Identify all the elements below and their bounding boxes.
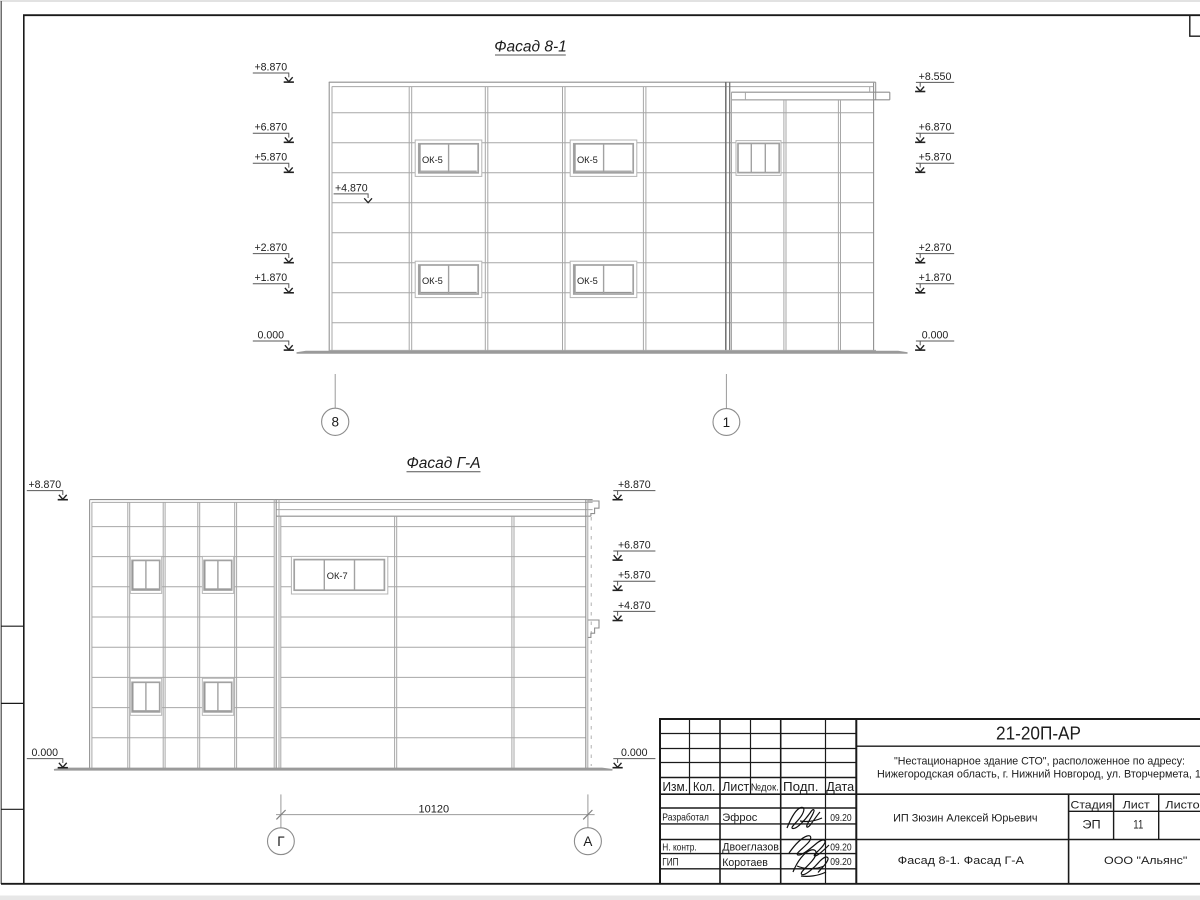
svg-text:Стадия: Стадия (1071, 799, 1113, 811)
svg-text:Фасад 8-1. Фасад Г-А: Фасад 8-1. Фасад Г-А (898, 855, 1025, 867)
svg-text:+2.870: +2.870 (919, 242, 952, 254)
svg-text:Эфрос: Эфрос (722, 812, 757, 824)
svg-text:Изм.: Изм. (663, 779, 689, 794)
svg-text:ИП Зюзин Алексей Юрьевич: ИП Зюзин Алексей Юрьевич (893, 812, 1038, 824)
svg-text:+8.870: +8.870 (618, 479, 651, 491)
svg-text:0.000: 0.000 (32, 747, 59, 759)
svg-text:09.20: 09.20 (830, 843, 852, 854)
svg-text:Г: Г (277, 834, 285, 849)
svg-text:09.20: 09.20 (830, 813, 852, 824)
svg-text:+6.870: +6.870 (618, 539, 651, 551)
svg-text:+1.870: +1.870 (919, 272, 952, 284)
svg-text:ОК-5: ОК-5 (577, 155, 598, 165)
svg-text:0.000: 0.000 (258, 329, 285, 341)
svg-text:ОК-7: ОК-7 (327, 571, 348, 581)
svg-text:ОК-5: ОК-5 (577, 276, 598, 286)
svg-text:+4.870: +4.870 (335, 182, 368, 194)
svg-text:Разработал: Разработал (662, 812, 709, 824)
svg-text:Фасад Г-А: Фасад Г-А (406, 455, 480, 472)
svg-text:Лист: Лист (1123, 799, 1151, 811)
svg-text:Дата: Дата (826, 779, 855, 794)
svg-text:8: 8 (331, 415, 339, 430)
svg-text:Двоеглазов: Двоеглазов (722, 842, 779, 854)
svg-text:+2.870: +2.870 (254, 242, 287, 254)
svg-text:11: 11 (1133, 818, 1143, 832)
svg-text:Кол.: Кол. (693, 779, 715, 794)
svg-text:№док.: №док. (751, 782, 779, 793)
svg-text:Подп.: Подп. (783, 779, 819, 794)
svg-text:+8.870: +8.870 (254, 61, 287, 73)
svg-text:Коротаев: Коротаев (722, 857, 768, 869)
svg-text:ООО "Альянс": ООО "Альянс" (1104, 855, 1187, 867)
svg-text:+5.870: +5.870 (919, 152, 952, 164)
svg-text:1: 1 (723, 415, 731, 430)
svg-text:+5.870: +5.870 (618, 570, 651, 582)
svg-text:+8.870: +8.870 (28, 479, 61, 491)
svg-text:ОК-5: ОК-5 (422, 155, 443, 165)
svg-text:Фасад 8-1: Фасад 8-1 (494, 39, 567, 56)
svg-text:"Нестационарное здание СТО", р: "Нестационарное здание СТО", расположенн… (894, 755, 1185, 767)
svg-text:ГИП: ГИП (662, 857, 678, 869)
svg-text:+8.550: +8.550 (919, 71, 952, 83)
svg-text:+1.870: +1.870 (254, 272, 287, 284)
svg-text:21-20П-АР: 21-20П-АР (996, 724, 1081, 744)
svg-text:+6.870: +6.870 (254, 122, 287, 134)
svg-text:Н. контр.: Н. контр. (662, 842, 696, 853)
svg-text:09.20: 09.20 (830, 857, 852, 868)
svg-text:Лист: Лист (722, 779, 749, 794)
svg-text:Листов: Листов (1165, 799, 1200, 811)
svg-text:Нижегородская область, г. Нижн: Нижегородская область, г. Нижний Новгоро… (877, 768, 1200, 780)
svg-text:0.000: 0.000 (621, 747, 648, 759)
svg-text:0.000: 0.000 (922, 329, 949, 341)
svg-text:+5.870: +5.870 (254, 152, 287, 164)
svg-text:А: А (583, 834, 592, 849)
svg-text:+4.870: +4.870 (618, 600, 651, 612)
svg-text:+6.870: +6.870 (919, 122, 952, 134)
svg-text:10120: 10120 (419, 803, 450, 815)
svg-text:ЭП: ЭП (1082, 818, 1100, 832)
svg-text:ОК-5: ОК-5 (422, 276, 443, 286)
